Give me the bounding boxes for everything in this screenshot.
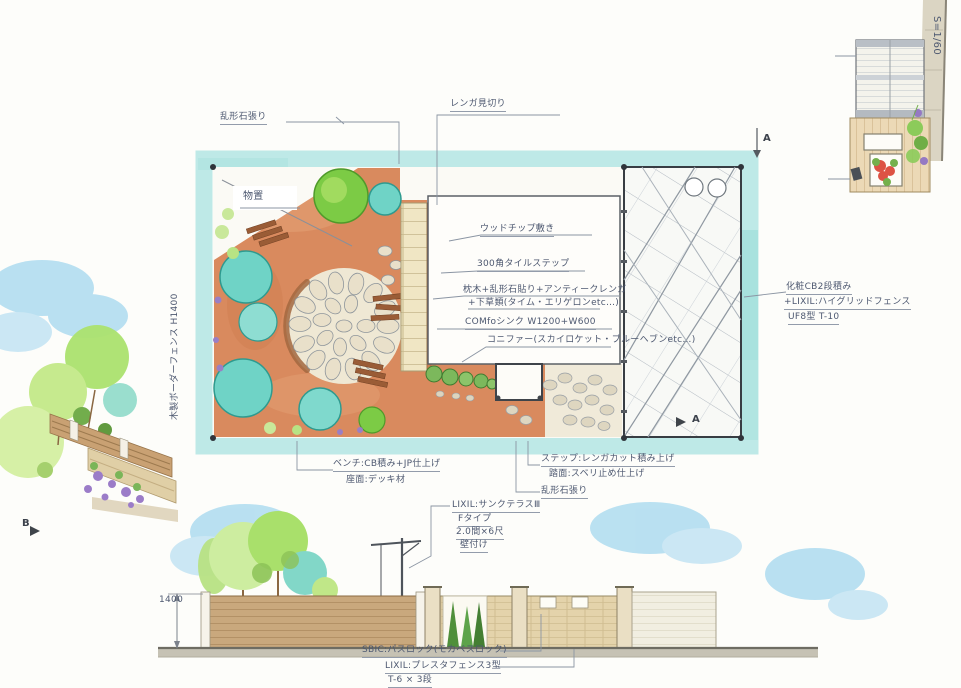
note-terrace-3: 2.0間×6尺 bbox=[456, 527, 504, 540]
note-tile-step: 300角タイルステップ bbox=[477, 259, 569, 272]
section-marker-a-top: A bbox=[763, 133, 771, 144]
section-arrow-b-icon bbox=[30, 526, 40, 536]
garden-design-sheet: 乱形石張り レンガ見切り ウッドチップ敷き 300角タイルステップ 枕木+乱形石… bbox=[0, 0, 961, 688]
note-fence-bottom-2: T-6 × 3段 bbox=[388, 675, 432, 688]
note-cb-fence-1: 化粧CB2段積み bbox=[786, 282, 852, 295]
note-bench-1: ベンチ:CB積み+JP仕上げ bbox=[333, 459, 440, 472]
note-sleeper-2: +下草類(タイム・エリゲロンetc…) bbox=[468, 298, 619, 309]
section-marker-b: B bbox=[22, 518, 30, 529]
scale-label: S=1/60 bbox=[930, 16, 943, 55]
terrace-footprint bbox=[496, 364, 542, 400]
tile-step-strip bbox=[401, 203, 427, 371]
note-sink: COMfoシンク W1200+W600 bbox=[465, 317, 596, 330]
left-sketch bbox=[0, 325, 178, 522]
note-step-3: 乱形石張り bbox=[541, 486, 588, 499]
note-bench-2: 座面:デッキ材 bbox=[346, 475, 405, 486]
note-conifer: コニファー(スカイロケット・ブルーヘブンetc…) bbox=[487, 335, 696, 346]
hatched-area bbox=[621, 167, 741, 437]
note-stone-paving-top: 乱形石張り bbox=[220, 112, 267, 125]
note-step-2: 踏面:スベリ止め仕上げ bbox=[549, 469, 645, 480]
note-terrace-1: LIXIL:サンクテラスⅢ bbox=[452, 500, 540, 513]
note-cb-fence-3: UF8型 T-10 bbox=[788, 312, 839, 325]
shed-label: 物置 bbox=[243, 191, 264, 204]
note-paving-product: SBIC:パスロック(モカベスロック) bbox=[362, 645, 507, 658]
note-wood-chip: ウッドチップ敷き bbox=[480, 224, 554, 237]
note-brick-edging: レンガ見切り bbox=[450, 99, 506, 112]
fence-left-vertical-label: 木製ボーダーフェンス H1400 bbox=[170, 293, 181, 420]
note-step-1: ステップ:レンガカット積み上げ bbox=[541, 454, 675, 467]
note-cb-fence-2: +LIXIL:ハイグリッドフェンス bbox=[784, 297, 911, 310]
note-terrace-4: 壁付け bbox=[460, 540, 488, 553]
note-fence-bottom-1: LIXIL:プレスタフェンス3型 bbox=[385, 661, 501, 674]
note-sleeper-1: 枕木+乱形石貼り+アンティークレンガ bbox=[463, 285, 627, 296]
dim-1400: 1400 bbox=[159, 595, 183, 606]
note-terrace-2: Fタイプ bbox=[458, 514, 491, 527]
section-marker-a-side: A bbox=[692, 414, 700, 425]
